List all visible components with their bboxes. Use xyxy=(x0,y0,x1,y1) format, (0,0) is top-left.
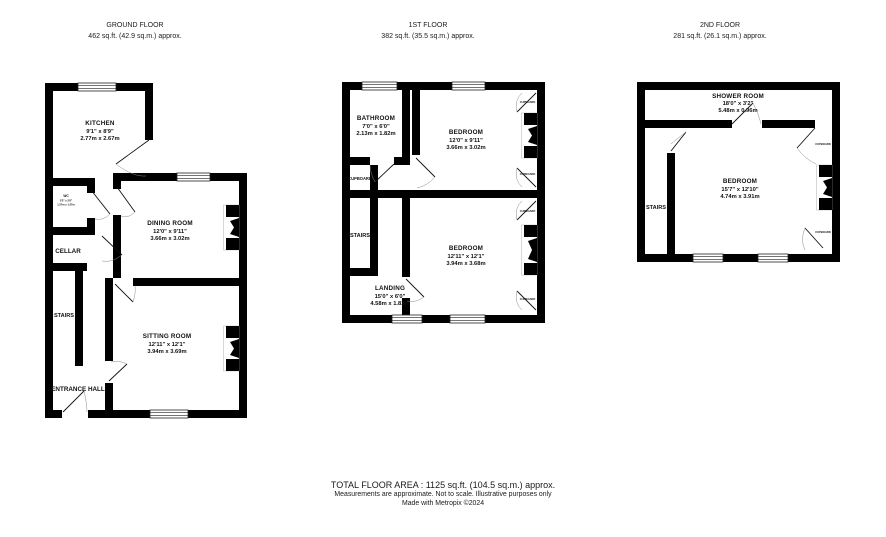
chimney-breast-bedroom2 xyxy=(817,165,833,210)
cupboard-label-2: CUPBOARD xyxy=(520,172,536,176)
wc-imperial: 5'2" x 3'6" xyxy=(60,199,73,203)
landing-metric: 4.58m x 1.82m xyxy=(370,301,409,307)
window-sitting xyxy=(150,410,188,418)
wc-label: WC xyxy=(63,194,69,198)
door-swing-front xyxy=(63,391,87,412)
cupboard2-label-1: CUPBOARD xyxy=(815,142,831,146)
window-bedroom-front xyxy=(452,82,485,90)
landing-imperial: 15'0" x 6'0" xyxy=(375,294,406,300)
kitchen-imperial: 9'1" x 8'9" xyxy=(86,129,114,135)
door-swing-stairs xyxy=(671,132,686,151)
window-bedroom2-left xyxy=(693,254,723,262)
shower-metric: 5.48m x 0.96m xyxy=(718,108,757,114)
first-floor-header: 1ST FLOOR 382 sq.ft. (35.5 sq.m.) approx… xyxy=(308,21,548,42)
window-dining xyxy=(177,173,210,181)
front-door-opening xyxy=(62,410,88,418)
first-floor-plan: BATHROOM 7'0" x 6'0" 2.13m x 1.82m BEDRO… xyxy=(342,80,552,330)
entrance-hall-label: ENTRANCE HALL xyxy=(51,386,105,393)
cupboard-label-3: CUPBOARD xyxy=(520,209,536,213)
door-swing-sitting xyxy=(115,284,135,302)
sitting-imperial: 12'11" x 12'1" xyxy=(149,342,186,348)
second-floor-header: 2ND FLOOR 281 sq.ft. (26.1 sq.m.) approx… xyxy=(600,21,840,42)
second-stairs-label: STAIRS xyxy=(646,205,666,211)
cupboard2-label-2: CUPBOARD xyxy=(815,230,831,234)
first-floor-svg: BATHROOM 7'0" x 6'0" 2.13m x 1.82m BEDRO… xyxy=(342,80,552,325)
chimney-breast-bedroom-front xyxy=(522,113,538,158)
sitting-metric: 3.94m x 3.69m xyxy=(147,349,186,355)
bathroom-metric: 2.13m x 1.82m xyxy=(356,131,395,137)
sitting-label: SITTING ROOM xyxy=(143,333,192,340)
window-bedroom-back xyxy=(450,315,485,323)
bedroom-front-metric: 3.66m x 3.02m xyxy=(446,145,485,151)
ground-floor-area: 462 sq.ft. (42.9 sq.m.) approx. xyxy=(15,32,255,43)
door-swing-dining xyxy=(117,187,135,217)
bedroom-back-imperial: 12'11" x 12'1" xyxy=(448,254,485,260)
cupboard-left-label: CUPBOARD xyxy=(348,176,372,181)
footer: TOTAL FLOOR AREA : 1125 sq.ft. (104.5 sq… xyxy=(243,479,643,509)
door-swing-hall xyxy=(109,361,127,381)
bedroom-front-imperial: 12'0" x 9'11" xyxy=(449,138,483,144)
ground-floor-svg: KITCHEN 9'1" x 8'9" 2.77m x 2.67m WC 5'2… xyxy=(40,78,255,423)
total-floor-area: TOTAL FLOOR AREA : 1125 sq.ft. (104.5 sq… xyxy=(243,479,643,491)
shower-imperial: 18'0" x 3'2" xyxy=(723,101,754,107)
window-kitchen xyxy=(78,83,116,91)
dining-metric: 3.66m x 3.02m xyxy=(150,236,189,242)
shower-label: SHOWER ROOM xyxy=(712,93,764,100)
bedroom-front-label: BEDROOM xyxy=(449,129,483,136)
cupboard-door-top xyxy=(797,128,816,164)
ground-floor-plan: KITCHEN 9'1" x 8'9" 2.77m x 2.67m WC 5'2… xyxy=(40,78,255,428)
cupboard-door-2 xyxy=(516,168,536,187)
bedroom2-metric: 4.74m x 3.91m xyxy=(720,194,759,200)
door-swing-kitchen xyxy=(116,140,149,176)
first-floor-area: 382 sq.ft. (35.5 sq.m.) approx. xyxy=(308,32,548,43)
bedroom-back-metric: 3.94m x 3.68m xyxy=(446,261,485,267)
second-floor-title: 2ND FLOOR xyxy=(600,21,840,32)
dining-label: DINING ROOM xyxy=(147,220,193,227)
second-floor-svg: SHOWER ROOM 18'0" x 3'2" 5.48m x 0.96m B… xyxy=(637,80,842,265)
cupboard-label-1: CUPBOARD xyxy=(520,100,536,104)
bedroom2-imperial: 15'7" x 12'10" xyxy=(721,187,759,193)
second-floor-plan: SHOWER ROOM 18'0" x 3'2" 5.48m x 0.96m B… xyxy=(637,80,842,270)
bathroom-imperial: 7'0" x 6'0" xyxy=(362,124,390,130)
cellar-label: CELLAR xyxy=(55,248,81,255)
metropix-credit: Made with Metropix ©2024 xyxy=(243,500,643,509)
chimney-breast-bedroom-back xyxy=(522,225,538,275)
ground-floor-header: GROUND FLOOR 462 sq.ft. (42.9 sq.m.) app… xyxy=(15,21,255,42)
chimney-breast-sitting xyxy=(224,326,240,371)
kitchen-label: KITCHEN xyxy=(85,120,115,127)
second-floor-area: 281 sq.ft. (26.1 sq.m.) approx. xyxy=(600,32,840,43)
door-swing-wc xyxy=(91,190,110,219)
first-stairs-label: STAIRS xyxy=(350,233,370,239)
floorplan-page: GROUND FLOOR 462 sq.ft. (42.9 sq.m.) app… xyxy=(0,0,886,537)
window-bathroom xyxy=(362,82,397,90)
bedroom-back-label: BEDROOM xyxy=(449,245,483,252)
bedroom2-label: BEDROOM xyxy=(723,178,757,185)
dining-imperial: 12'0" x 9'11" xyxy=(153,229,187,235)
window-bedroom2-right xyxy=(758,254,788,262)
window-landing xyxy=(392,315,422,323)
landing-label: LANDING xyxy=(375,285,405,292)
ground-stairs-label: STAIRS xyxy=(54,313,74,319)
kitchen-metric: 2.77m x 2.67m xyxy=(80,136,119,142)
chimney-breast-dining xyxy=(224,205,240,250)
bathroom-label: BATHROOM xyxy=(357,115,395,122)
wc-metric: 1.57m x 1.07m xyxy=(57,203,75,207)
first-floor-title: 1ST FLOOR xyxy=(308,21,548,32)
ground-floor-title: GROUND FLOOR xyxy=(15,21,255,32)
cupboard-label-4: CUPBOARD xyxy=(520,297,536,301)
door-swing-bedroom-front xyxy=(416,158,435,188)
disclaimer-text: Measurements are approximate. Not to sca… xyxy=(243,491,643,500)
